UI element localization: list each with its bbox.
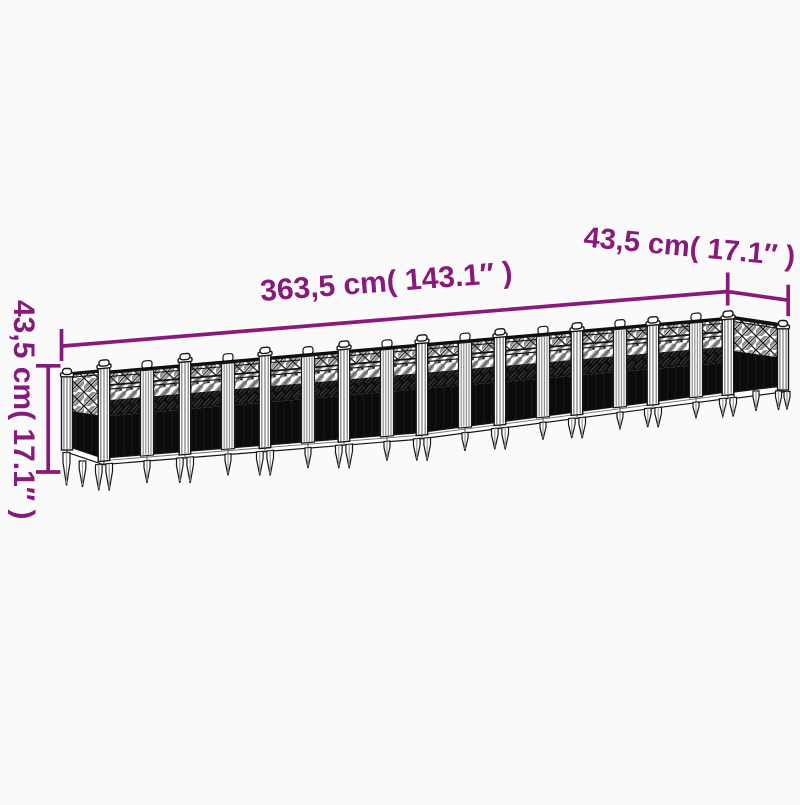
svg-text:43,5 cm( 17.1″ ): 43,5 cm( 17.1″ )	[7, 300, 40, 520]
